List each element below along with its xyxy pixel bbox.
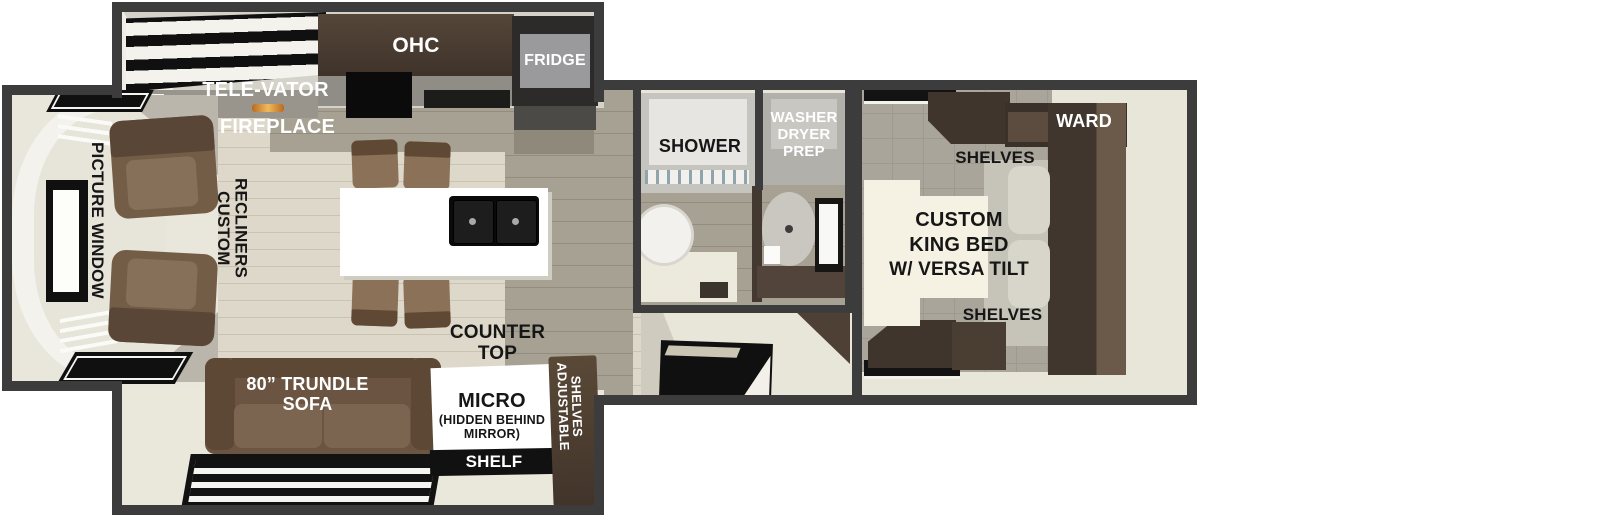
- picture-window-glass: [53, 190, 79, 292]
- wall-slideout-top: [112, 2, 604, 12]
- kitchen-island: [340, 188, 548, 276]
- televator-tv: [346, 72, 412, 118]
- wall-main-top: [604, 80, 1197, 90]
- wall-cap-bottom: [2, 381, 120, 391]
- chair-back: [351, 309, 398, 327]
- shelves-top-label: SHELVES: [945, 148, 1045, 167]
- recliner-2-seat: [126, 258, 198, 310]
- wall-main-right: [1187, 80, 1197, 405]
- trundle-sofa-label: 80” TRUNDLE SOFA: [225, 374, 390, 414]
- rv-floorplan: OHC FRIDGE TELE-VATOR FIREPLACE PICTURE …: [0, 0, 1600, 531]
- wall-main-bottom: [604, 395, 1197, 405]
- toilet-paper: [764, 246, 780, 264]
- sofa-rug: [181, 454, 443, 508]
- wall-slideout-left: [112, 2, 122, 98]
- mirror-glass: [819, 204, 838, 264]
- washer-dryer-prep-label: WASHER DRYER PREP: [763, 110, 845, 160]
- wall-bathroom-left: [633, 85, 641, 313]
- vanity-item: [700, 282, 728, 298]
- micro-label: MICRO: [430, 390, 554, 412]
- bathroom-sink: [634, 204, 694, 266]
- king-bed-label: CUSTOM KING BED W/ VERSA TILT: [875, 208, 1043, 282]
- dining-chair-1: [351, 139, 399, 189]
- recliner-1-back: [109, 114, 215, 157]
- chair-back: [351, 139, 397, 156]
- entry-step-corner: [743, 355, 770, 398]
- fireplace-glow: [252, 104, 284, 112]
- wall-sofa-slide-left: [112, 381, 122, 515]
- wall-bathroom-bottom: [633, 305, 853, 313]
- dark-counter-right: [514, 106, 596, 130]
- green-counter-right: [514, 128, 594, 154]
- ohc-label: OHC: [318, 34, 514, 58]
- wardrobe-vertical: [1048, 103, 1126, 375]
- recliner-1: [109, 114, 220, 219]
- dining-chair-4: [403, 275, 451, 329]
- wall-bedroom-left: [852, 80, 862, 405]
- fridge-label: FRIDGE: [512, 52, 598, 70]
- sink-faucet-dot-right: [512, 218, 519, 225]
- dining-chair-3: [351, 273, 399, 327]
- entry-mat-bottom: [57, 352, 193, 384]
- custom-recliners-label: CUSTOM RECLINERS: [214, 178, 250, 278]
- picture-window-label: PICTURE WINDOW: [88, 142, 106, 299]
- tele-vator-label: TELE-VATOR: [198, 79, 333, 101]
- dining-chair-2: [403, 141, 451, 191]
- shelves-unit-bottom: [952, 322, 1006, 370]
- shower-glass-shelf: [645, 170, 749, 184]
- toilet-flush-button: [785, 225, 793, 233]
- recliner-2: [108, 249, 219, 346]
- cooktop: [424, 90, 510, 108]
- bedroom-window-bottom-sill: [864, 376, 960, 379]
- fireplace-label: FIREPLACE: [210, 116, 345, 138]
- island-sink: [449, 196, 539, 246]
- wall-shower-divider: [755, 90, 763, 190]
- entry-step: [659, 340, 773, 400]
- recliner-2-back: [108, 307, 216, 347]
- bathroom-mirror: [815, 198, 843, 272]
- ward-label: WARD: [1042, 111, 1126, 131]
- wall-cap-top: [2, 85, 120, 95]
- wall-sofa-slide-bottom: [112, 505, 604, 515]
- wall-sofa-slide-right: [594, 395, 604, 515]
- entry-step-tread: [665, 345, 741, 357]
- counter-top-label: COUNTER TOP: [440, 322, 555, 365]
- shower-label: SHOWER: [650, 136, 750, 156]
- wall-cap-left: [2, 85, 12, 391]
- shelf-label: SHELF: [430, 452, 558, 471]
- sink-faucet-dot-left: [469, 218, 476, 225]
- shelves-bottom-label: SHELVES: [950, 305, 1055, 324]
- micro-sub-label: (HIDDEN BEHIND MIRROR): [424, 413, 560, 441]
- adjustable-shelves-label: ADJUSTABLE SHELVES: [554, 362, 584, 451]
- chair-back: [404, 141, 450, 158]
- recliner-1-seat: [125, 156, 198, 211]
